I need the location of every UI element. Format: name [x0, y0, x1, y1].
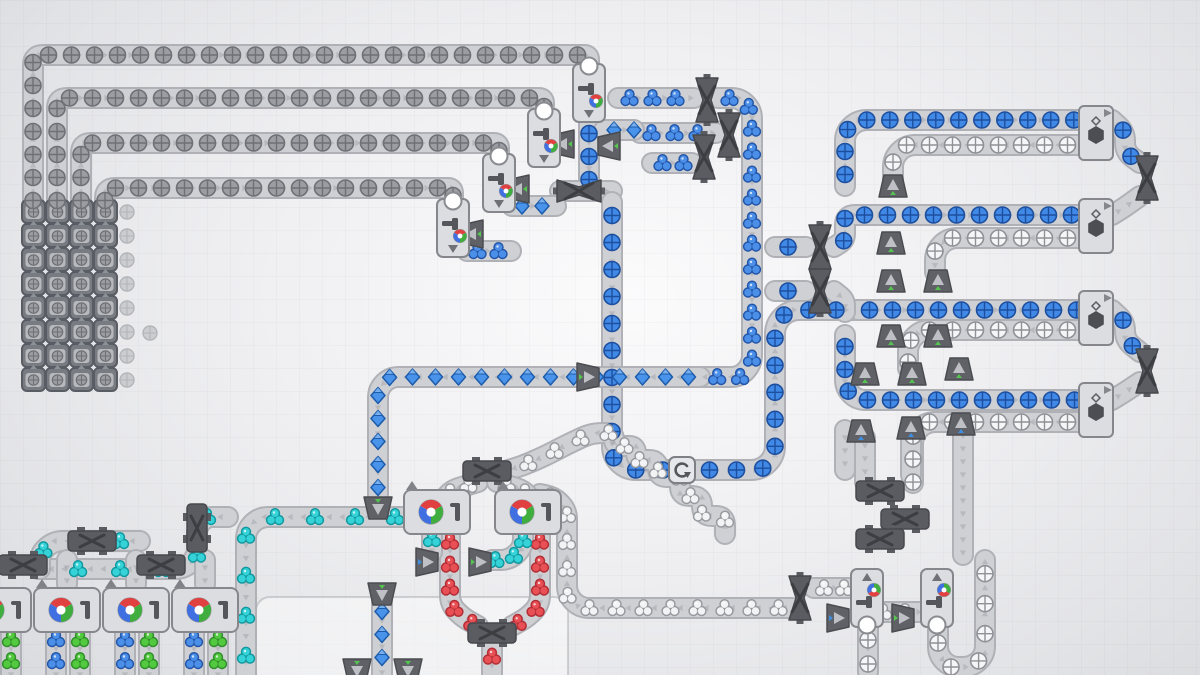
resource-node[interactable] — [120, 205, 134, 219]
item-blueCircle[interactable] — [949, 207, 965, 223]
item-blueCircle[interactable] — [837, 362, 853, 378]
balancer[interactable] — [68, 527, 116, 555]
item-grayCircle[interactable] — [202, 47, 218, 63]
miner[interactable] — [70, 365, 93, 391]
tunnel-up[interactable] — [945, 358, 973, 380]
item-grayCircle[interactable] — [432, 47, 448, 63]
item-blueCircle[interactable] — [604, 343, 620, 359]
item-grayCircle[interactable] — [25, 55, 41, 71]
item-grayCircle[interactable] — [131, 90, 147, 106]
item-blueCircle[interactable] — [604, 316, 620, 332]
item-grayCircle[interactable] — [49, 147, 65, 163]
item-grayCircle[interactable] — [177, 135, 193, 151]
item-grayCircle[interactable] — [25, 101, 41, 117]
item-grayCircle[interactable] — [25, 170, 41, 186]
miner[interactable] — [94, 293, 117, 319]
item-blueCircle[interactable] — [702, 462, 718, 478]
miner[interactable] — [46, 317, 69, 343]
item-grayCircle[interactable] — [154, 135, 170, 151]
color-wheel-icon — [118, 598, 142, 622]
item-grayCircle[interactable] — [522, 90, 538, 106]
item-grayCircle[interactable] — [223, 180, 239, 196]
tunnel-up[interactable] — [847, 420, 875, 442]
item-blueCircle[interactable] — [755, 460, 771, 476]
item-blueCircle[interactable] — [929, 392, 945, 408]
item-grayCircle[interactable] — [269, 135, 285, 151]
color-wheel-icon — [544, 139, 557, 152]
resource-node[interactable] — [120, 301, 134, 315]
miner[interactable] — [46, 221, 69, 247]
item-grayCircle[interactable] — [340, 47, 356, 63]
painter-down[interactable] — [483, 148, 515, 220]
item-blueCircle[interactable] — [604, 397, 620, 413]
item-whiteCircle[interactable] — [930, 635, 946, 651]
item-grayCircle[interactable] — [73, 170, 89, 186]
item-grayCircle[interactable] — [131, 135, 147, 151]
item-grayCircle[interactable] — [154, 90, 170, 106]
item-blueCircle[interactable] — [1021, 392, 1037, 408]
miner[interactable] — [70, 293, 93, 319]
item-whiteCircle[interactable] — [968, 322, 984, 338]
item-whiteCircle[interactable] — [1014, 414, 1030, 430]
painter-down[interactable] — [528, 103, 560, 175]
item-grayCircle[interactable] — [110, 47, 126, 63]
item-blueCircle[interactable] — [767, 411, 783, 427]
item-blueCircle[interactable] — [885, 302, 901, 318]
balancer[interactable] — [137, 551, 185, 579]
item-blueCircle[interactable] — [1023, 302, 1039, 318]
item-grayCircle[interactable] — [49, 170, 65, 186]
item-blueCircle[interactable] — [974, 112, 990, 128]
item-grayCircle[interactable] — [108, 180, 124, 196]
item-grayCircle[interactable] — [430, 135, 446, 151]
item-grayCircle[interactable] — [108, 90, 124, 106]
balancer[interactable] — [0, 551, 47, 579]
color-wheel-icon — [419, 500, 443, 524]
item-grayCircle[interactable] — [85, 90, 101, 106]
item-grayCircle[interactable] — [294, 47, 310, 63]
item-blueCircle[interactable] — [954, 302, 970, 318]
item-grayCircle[interactable] — [407, 180, 423, 196]
tunnel-down[interactable] — [368, 583, 396, 605]
item-grayCircle[interactable] — [524, 47, 540, 63]
item-whiteCircle[interactable] — [968, 230, 984, 246]
item-blueCircle[interactable] — [905, 112, 921, 128]
miner[interactable] — [94, 245, 117, 271]
item-blueCircle[interactable] — [836, 233, 852, 249]
item-blueCircle[interactable] — [951, 112, 967, 128]
miner[interactable] — [46, 269, 69, 295]
item-blueCircle[interactable] — [1115, 312, 1131, 328]
crystal-machine[interactable] — [1079, 199, 1113, 253]
item-blueCircle[interactable] — [767, 357, 783, 373]
item-grayCircle[interactable] — [41, 47, 57, 63]
miner[interactable] — [46, 341, 69, 367]
item-grayCircle[interactable] — [73, 193, 89, 209]
item-whiteCircle[interactable] — [905, 451, 921, 467]
miner[interactable] — [94, 317, 117, 343]
miner[interactable] — [46, 365, 69, 391]
item-grayCircle[interactable] — [154, 180, 170, 196]
item-grayCircle[interactable] — [501, 47, 517, 63]
item-grayCircle[interactable] — [223, 135, 239, 151]
balancer[interactable] — [468, 619, 516, 647]
balancer[interactable] — [856, 525, 904, 553]
item-blueCircle[interactable] — [1018, 207, 1034, 223]
item-whiteCircle[interactable] — [1014, 137, 1030, 153]
miner[interactable] — [94, 365, 117, 391]
item-grayCircle[interactable] — [455, 47, 471, 63]
item-blueCircle[interactable] — [776, 307, 792, 323]
tunnel-up[interactable] — [877, 232, 905, 254]
item-blueCircle[interactable] — [975, 392, 991, 408]
item-grayCircle[interactable] — [430, 90, 446, 106]
resource-node[interactable] — [143, 326, 157, 340]
item-blueCircle[interactable] — [1044, 392, 1060, 408]
item-grayCircle[interactable] — [246, 180, 262, 196]
miner[interactable] — [70, 221, 93, 247]
color-wheel-icon — [510, 500, 534, 524]
item-blueCircle[interactable] — [1115, 122, 1131, 138]
item-whiteCircle[interactable] — [968, 137, 984, 153]
item-grayCircle[interactable] — [25, 193, 41, 209]
item-whiteCircle[interactable] — [991, 322, 1007, 338]
tunnel-right[interactable] — [577, 363, 599, 391]
item-blueCircle[interactable] — [882, 112, 898, 128]
item-grayCircle[interactable] — [361, 135, 377, 151]
item-grayCircle[interactable] — [363, 47, 379, 63]
crystal-machine[interactable] — [1079, 106, 1113, 160]
conveyor-belt[interactable] — [1112, 382, 1140, 400]
item-grayCircle[interactable] — [269, 90, 285, 106]
miner[interactable] — [70, 269, 93, 295]
item-grayCircle[interactable] — [499, 90, 515, 106]
item-blueCircle[interactable] — [1020, 112, 1036, 128]
item-whiteCircle[interactable] — [1037, 414, 1053, 430]
miner[interactable] — [22, 221, 45, 247]
item-grayCircle[interactable] — [409, 47, 425, 63]
item-blueCircle[interactable] — [780, 283, 796, 299]
item-whiteCircle[interactable] — [991, 230, 1007, 246]
tunnel-up[interactable] — [897, 417, 925, 439]
item-blueCircle[interactable] — [581, 149, 597, 165]
balancer[interactable] — [463, 457, 511, 485]
item-blueCircle[interactable] — [837, 211, 853, 227]
item-grayCircle[interactable] — [246, 90, 262, 106]
resource-node[interactable] — [120, 325, 134, 339]
item-grayCircle[interactable] — [64, 47, 80, 63]
item-blueCircle[interactable] — [767, 438, 783, 454]
tunnel-right[interactable] — [827, 604, 849, 632]
item-grayCircle[interactable] — [476, 90, 492, 106]
miner[interactable] — [70, 317, 93, 343]
item-blueCircle[interactable] — [1046, 302, 1062, 318]
item-whiteCircle[interactable] — [905, 474, 921, 490]
item-blueCircle[interactable] — [859, 112, 875, 128]
item-grayCircle[interactable] — [25, 147, 41, 163]
tunnel-down[interactable] — [343, 659, 371, 675]
item-grayCircle[interactable] — [453, 90, 469, 106]
tunnel-down[interactable] — [394, 659, 422, 675]
tunnel-up[interactable] — [879, 175, 907, 197]
item-grayCircle[interactable] — [407, 90, 423, 106]
item-grayCircle[interactable] — [453, 135, 469, 151]
item-blueCircle[interactable] — [1064, 207, 1080, 223]
tunnel-down[interactable] — [364, 497, 392, 519]
item-grayCircle[interactable] — [315, 135, 331, 151]
item-whiteCircle[interactable] — [945, 230, 961, 246]
item-grayCircle[interactable] — [271, 47, 287, 63]
item-grayCircle[interactable] — [200, 135, 216, 151]
item-grayCircle[interactable] — [384, 90, 400, 106]
item-grayCircle[interactable] — [292, 135, 308, 151]
item-blueCircle[interactable] — [780, 239, 796, 255]
item-whiteCircle[interactable] — [1060, 230, 1076, 246]
item-grayCircle[interactable] — [200, 180, 216, 196]
item-grayCircle[interactable] — [49, 193, 65, 209]
color-wheel-icon — [453, 229, 466, 242]
item-grayCircle[interactable] — [315, 180, 331, 196]
item-grayCircle[interactable] — [338, 180, 354, 196]
item-grayCircle[interactable] — [225, 47, 241, 63]
item-whiteCircle[interactable] — [1037, 230, 1053, 246]
resource-node[interactable] — [120, 277, 134, 291]
item-blueCircle[interactable] — [860, 392, 876, 408]
item-blueCircle[interactable] — [997, 112, 1013, 128]
item-grayCircle[interactable] — [361, 90, 377, 106]
item-grayCircle[interactable] — [384, 135, 400, 151]
item-grayCircle[interactable] — [269, 180, 285, 196]
item-blueCircle[interactable] — [972, 207, 988, 223]
item-blueCircle[interactable] — [604, 208, 620, 224]
item-blueCircle[interactable] — [952, 392, 968, 408]
miner[interactable] — [70, 245, 93, 271]
item-blueCircle[interactable] — [908, 302, 924, 318]
color-wheel-icon — [187, 598, 211, 622]
tunnel-right[interactable] — [892, 604, 914, 632]
item-grayCircle[interactable] — [478, 47, 494, 63]
item-blueCircle[interactable] — [998, 392, 1014, 408]
item-blueCircle[interactable] — [931, 302, 947, 318]
item-grayCircle[interactable] — [248, 47, 264, 63]
item-whiteCircle[interactable] — [977, 566, 993, 582]
item-grayCircle[interactable] — [87, 47, 103, 63]
item-whiteCircle[interactable] — [927, 243, 943, 259]
item-blueCircle[interactable] — [837, 339, 853, 355]
item-whiteCircle[interactable] — [1060, 137, 1076, 153]
item-blueCircle[interactable] — [928, 112, 944, 128]
item-blueCircle[interactable] — [995, 207, 1011, 223]
item-blueCircle[interactable] — [906, 392, 922, 408]
item-blueCircle[interactable] — [977, 302, 993, 318]
item-grayCircle[interactable] — [430, 180, 446, 196]
rotator[interactable] — [669, 457, 695, 483]
item-blueCircle[interactable] — [604, 235, 620, 251]
miner[interactable] — [46, 245, 69, 271]
miner[interactable] — [94, 221, 117, 247]
miner[interactable] — [94, 269, 117, 295]
resource-node[interactable] — [120, 229, 134, 243]
balancer[interactable] — [856, 477, 904, 505]
item-whiteCircle[interactable] — [971, 653, 987, 669]
item-grayCircle[interactable] — [177, 180, 193, 196]
item-whiteCircle[interactable] — [945, 137, 961, 153]
tunnel-up[interactable] — [924, 325, 952, 347]
item-grayCircle[interactable] — [292, 90, 308, 106]
miner[interactable] — [22, 245, 45, 271]
item-blueCircle[interactable] — [837, 144, 853, 160]
item-whiteCircle[interactable] — [922, 414, 938, 430]
item-whiteCircle[interactable] — [1014, 322, 1030, 338]
item-whiteCircle[interactable] — [991, 137, 1007, 153]
item-blueCircle[interactable] — [1041, 207, 1057, 223]
item-blueCircle[interactable] — [862, 302, 878, 318]
item-grayCircle[interactable] — [85, 135, 101, 151]
item-blueCircle[interactable] — [926, 207, 942, 223]
tunnel-right[interactable] — [416, 548, 438, 576]
item-grayCircle[interactable] — [200, 90, 216, 106]
item-grayCircle[interactable] — [338, 90, 354, 106]
tunnel-up[interactable] — [947, 413, 975, 435]
miner[interactable] — [94, 341, 117, 367]
miner[interactable] — [22, 293, 45, 319]
item-blueCircle[interactable] — [1043, 112, 1059, 128]
item-blueCircle[interactable] — [880, 207, 896, 223]
item-whiteCircle[interactable] — [922, 137, 938, 153]
item-grayCircle[interactable] — [317, 47, 333, 63]
item-whiteCircle[interactable] — [1060, 414, 1076, 430]
miner[interactable] — [70, 341, 93, 367]
item-whiteCircle[interactable] — [1014, 230, 1030, 246]
miner[interactable] — [46, 293, 69, 319]
item-whiteCircle[interactable] — [1060, 322, 1076, 338]
item-grayCircle[interactable] — [49, 124, 65, 140]
color-wheel-icon — [867, 583, 880, 596]
painter-down[interactable] — [437, 193, 469, 265]
painter-up[interactable] — [851, 562, 883, 634]
item-grayCircle[interactable] — [133, 47, 149, 63]
item-blueCircle[interactable] — [837, 167, 853, 183]
tunnel-up[interactable] — [898, 363, 926, 385]
tunnel-right[interactable] — [469, 548, 491, 576]
item-blueCircle[interactable] — [1000, 302, 1016, 318]
item-grayCircle[interactable] — [315, 90, 331, 106]
item-blueCircle[interactable] — [883, 392, 899, 408]
color-wheel-icon — [49, 598, 73, 622]
item-whiteCircle[interactable] — [943, 659, 959, 675]
item-grayCircle[interactable] — [179, 47, 195, 63]
balancer[interactable] — [183, 504, 211, 552]
item-blueCircle[interactable] — [767, 330, 783, 346]
item-grayCircle[interactable] — [223, 90, 239, 106]
item-blueCircle[interactable] — [729, 462, 745, 478]
tunnel-left[interactable] — [598, 132, 620, 160]
item-grayCircle[interactable] — [384, 180, 400, 196]
item-grayCircle[interactable] — [25, 124, 41, 140]
item-grayCircle[interactable] — [386, 47, 402, 63]
item-blueCircle[interactable] — [840, 122, 856, 138]
item-grayCircle[interactable] — [547, 47, 563, 63]
item-blueCircle[interactable] — [903, 207, 919, 223]
item-whiteCircle[interactable] — [1037, 322, 1053, 338]
item-grayCircle[interactable] — [156, 47, 172, 63]
color-wheel-icon — [937, 583, 950, 596]
item-grayCircle[interactable] — [476, 135, 492, 151]
item-whiteCircle[interactable] — [991, 414, 1007, 430]
item-grayCircle[interactable] — [246, 135, 262, 151]
tunnel-up[interactable] — [924, 270, 952, 292]
game-viewport — [0, 0, 1200, 675]
item-whiteCircle[interactable] — [885, 154, 901, 170]
resource-node[interactable] — [120, 253, 134, 267]
color-wheel-icon — [499, 184, 512, 197]
item-grayCircle[interactable] — [25, 78, 41, 94]
resource-node[interactable] — [120, 349, 134, 363]
item-grayCircle[interactable] — [62, 90, 78, 106]
item-grayCircle[interactable] — [361, 180, 377, 196]
item-whiteCircle[interactable] — [977, 596, 993, 612]
crystal-machine[interactable] — [1079, 383, 1113, 437]
item-blueCircle[interactable] — [604, 289, 620, 305]
item-whiteCircle[interactable] — [860, 656, 876, 672]
painter-up[interactable] — [921, 562, 953, 634]
resource-node[interactable] — [120, 373, 134, 387]
item-grayCircle[interactable] — [131, 180, 147, 196]
painter-down[interactable] — [573, 58, 605, 130]
crystal-machine[interactable] — [1079, 291, 1113, 345]
miner[interactable] — [22, 317, 45, 343]
item-blueCircle[interactable] — [604, 262, 620, 278]
item-blueCircle[interactable] — [857, 207, 873, 223]
item-blueCircle[interactable] — [767, 384, 783, 400]
item-grayCircle[interactable] — [108, 135, 124, 151]
tunnel-up[interactable] — [877, 325, 905, 347]
item-grayCircle[interactable] — [177, 90, 193, 106]
color-wheel-icon — [589, 94, 602, 107]
item-grayCircle[interactable] — [292, 180, 308, 196]
item-grayCircle[interactable] — [338, 135, 354, 151]
miner[interactable] — [22, 269, 45, 295]
item-whiteCircle[interactable] — [977, 626, 993, 642]
item-grayCircle[interactable] — [407, 135, 423, 151]
miner[interactable] — [22, 365, 45, 391]
tunnel-up[interactable] — [851, 363, 879, 385]
item-whiteCircle[interactable] — [899, 137, 915, 153]
factory-canvas[interactable] — [0, 0, 1200, 675]
tunnel-up[interactable] — [877, 270, 905, 292]
item-whiteCircle[interactable] — [1037, 137, 1053, 153]
miner[interactable] — [22, 341, 45, 367]
